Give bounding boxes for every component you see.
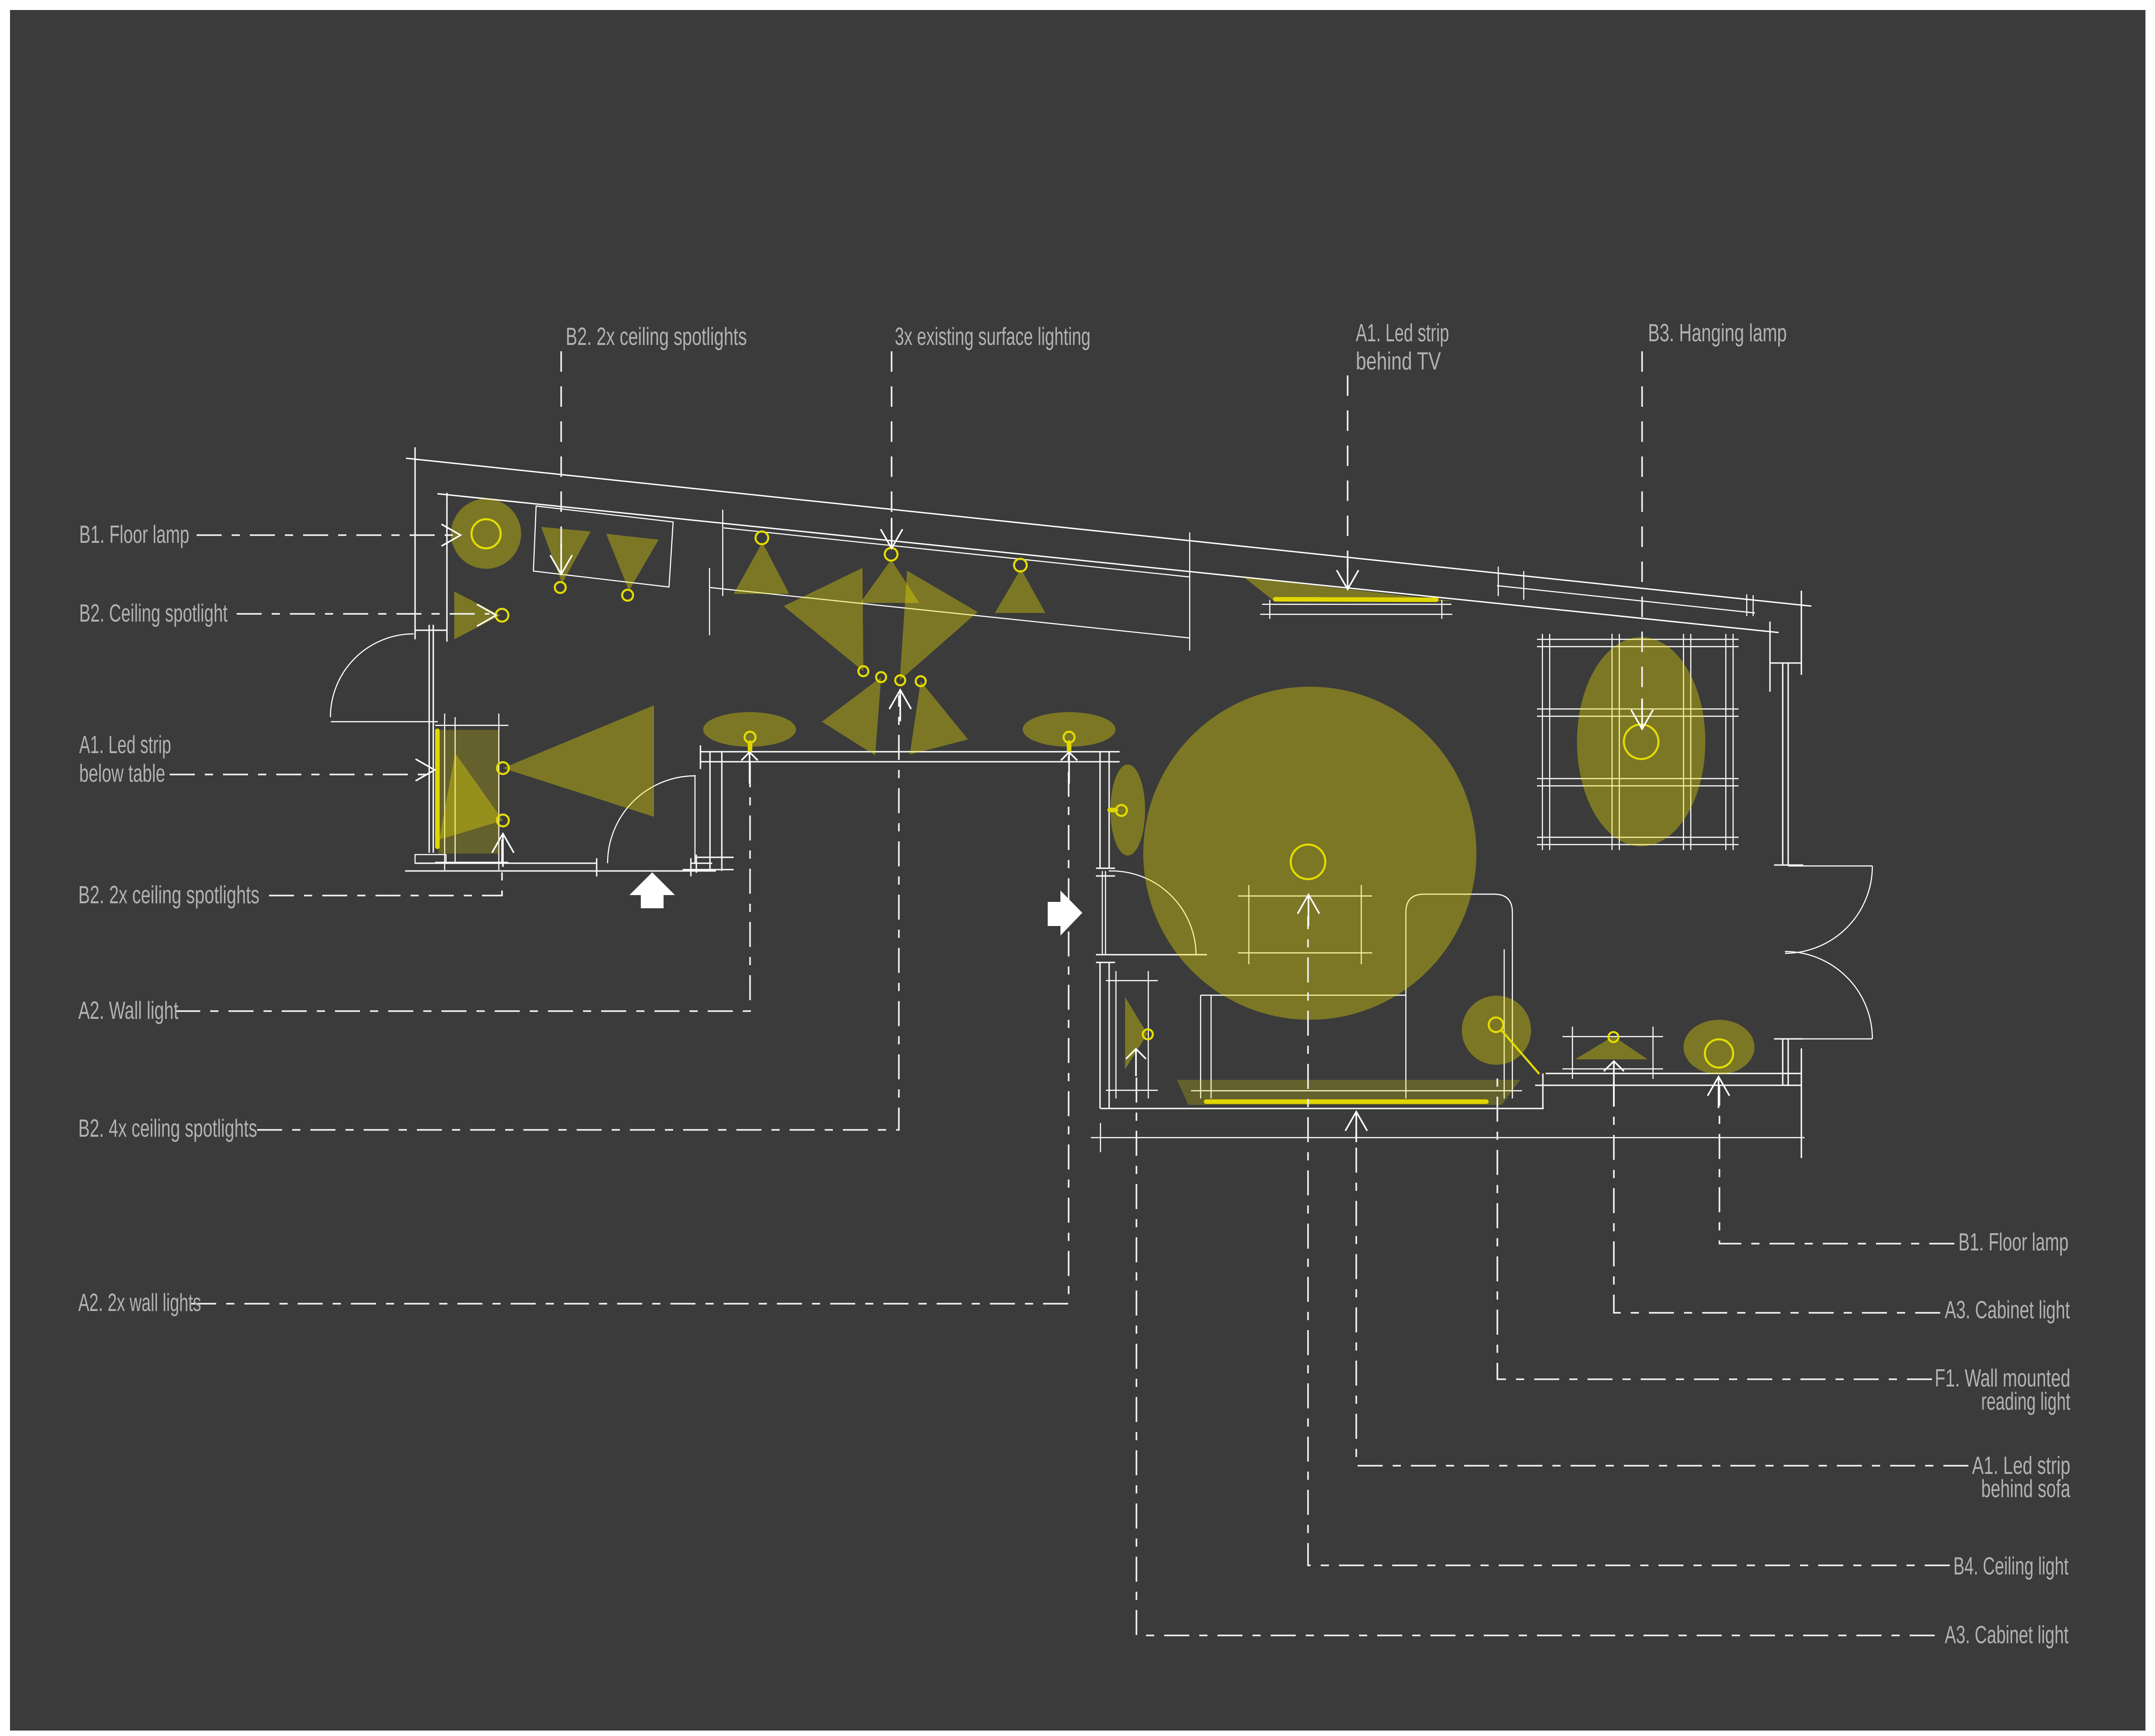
svg-text:behind TV: behind TV [1356, 347, 1441, 375]
svg-text:B3. Hanging lamp: B3. Hanging lamp [1648, 319, 1787, 347]
svg-text:A1. Led strip: A1. Led strip [79, 730, 171, 759]
svg-text:B1. Floor lamp: B1. Floor lamp [79, 520, 189, 548]
svg-text:B2. Ceiling spotlight: B2. Ceiling spotlight [79, 599, 228, 627]
svg-text:B2. 4x ceiling spotlights: B2. 4x ceiling spotlights [78, 1114, 257, 1142]
svg-text:A1. Led strip: A1. Led strip [1356, 319, 1449, 347]
svg-text:reading light: reading light [1981, 1387, 2070, 1415]
svg-text:A3. Cabinet light: A3. Cabinet light [1945, 1620, 2069, 1649]
svg-text:B2. 2x ceiling spotlights: B2. 2x ceiling spotlights [78, 881, 259, 909]
svg-text:behind sofa: behind sofa [1981, 1474, 2070, 1503]
svg-text:B4. Ceiling light: B4. Ceiling light [1953, 1552, 2069, 1580]
svg-text:A2. 2x wall lights: A2. 2x wall lights [78, 1288, 201, 1316]
svg-text:3x existing surface lighting: 3x existing surface lighting [895, 322, 1090, 350]
svg-text:A3. Cabinet light: A3. Cabinet light [1945, 1296, 2070, 1324]
svg-text:B1. Floor lamp: B1. Floor lamp [1958, 1228, 2069, 1256]
svg-text:B2. 2x ceiling spotlights: B2. 2x ceiling spotlights [566, 322, 747, 350]
svg-text:A2. Wall light: A2. Wall light [78, 996, 178, 1024]
svg-text:below table: below table [79, 759, 165, 787]
